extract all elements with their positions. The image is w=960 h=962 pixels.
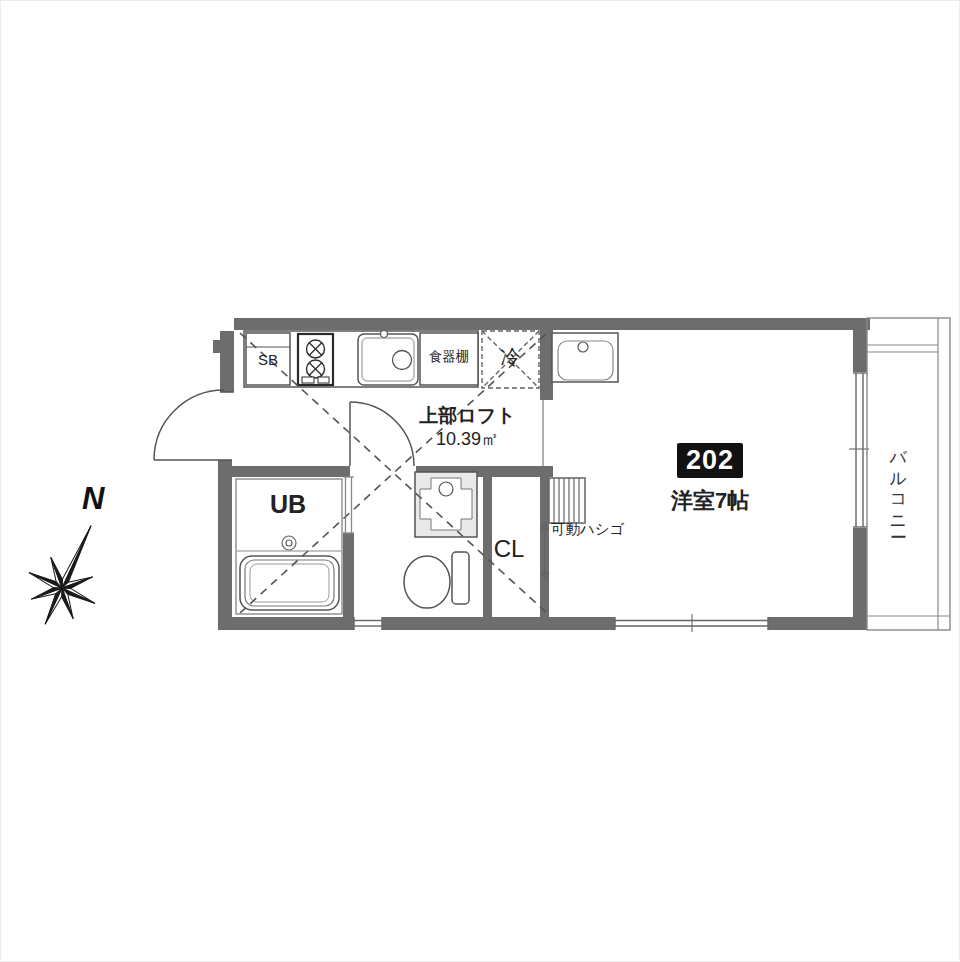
room-name-label: 洋室7帖 xyxy=(645,489,775,513)
ladder-label: 可動ハシゴ xyxy=(551,522,651,538)
wall-bath-toilet xyxy=(343,533,354,617)
compass-rose-icon xyxy=(13,511,124,639)
loft-label: 上部ロフト xyxy=(405,406,530,427)
washing-machine-pan-icon xyxy=(552,333,618,382)
shoe-box-label: SB xyxy=(246,352,290,369)
window-right xyxy=(849,373,869,527)
wall-bottom-1 xyxy=(218,617,354,630)
washbasin-icon xyxy=(415,472,477,537)
bath-door-opening xyxy=(343,477,354,533)
gas-stove-icon xyxy=(298,334,333,385)
closet-label: CL xyxy=(483,536,535,562)
balcony-outline xyxy=(867,318,950,630)
unit-number-badge: 202 xyxy=(677,443,743,478)
wall-left-lower xyxy=(218,460,232,630)
unit-bath-label: UB xyxy=(257,491,319,519)
wall-mid-left xyxy=(232,466,350,477)
wall-left-upper xyxy=(220,331,234,392)
kitchen-sink-icon xyxy=(358,331,418,386)
north-label: N xyxy=(82,482,104,516)
toilet-icon xyxy=(404,552,469,608)
cupboard-label: 食器棚 xyxy=(420,350,478,365)
loft-area-label: 10.39㎡ xyxy=(405,430,530,450)
wall-bottom-2 xyxy=(382,617,615,630)
wall-closet-right xyxy=(540,477,549,617)
wall-left-step xyxy=(213,340,221,353)
wall-mid-right xyxy=(416,466,553,477)
wall-kitchen-room xyxy=(540,318,553,400)
ladder-icon xyxy=(549,478,585,523)
balcony-label: バルコニー xyxy=(888,424,907,544)
floorplan-canvas: SB 食器棚 冷 上部ロフト 10.39㎡ UB CL 可動ハシゴ 202 洋室… xyxy=(0,0,960,962)
entrance-door-arc xyxy=(154,390,234,460)
wall-right-lower xyxy=(853,528,867,630)
refrigerator-label: 冷 xyxy=(482,346,539,368)
wall-right-upper xyxy=(853,318,867,372)
window-bottom-main xyxy=(615,614,768,632)
window-toilet xyxy=(354,617,382,630)
floorplan-lineart xyxy=(0,0,960,962)
